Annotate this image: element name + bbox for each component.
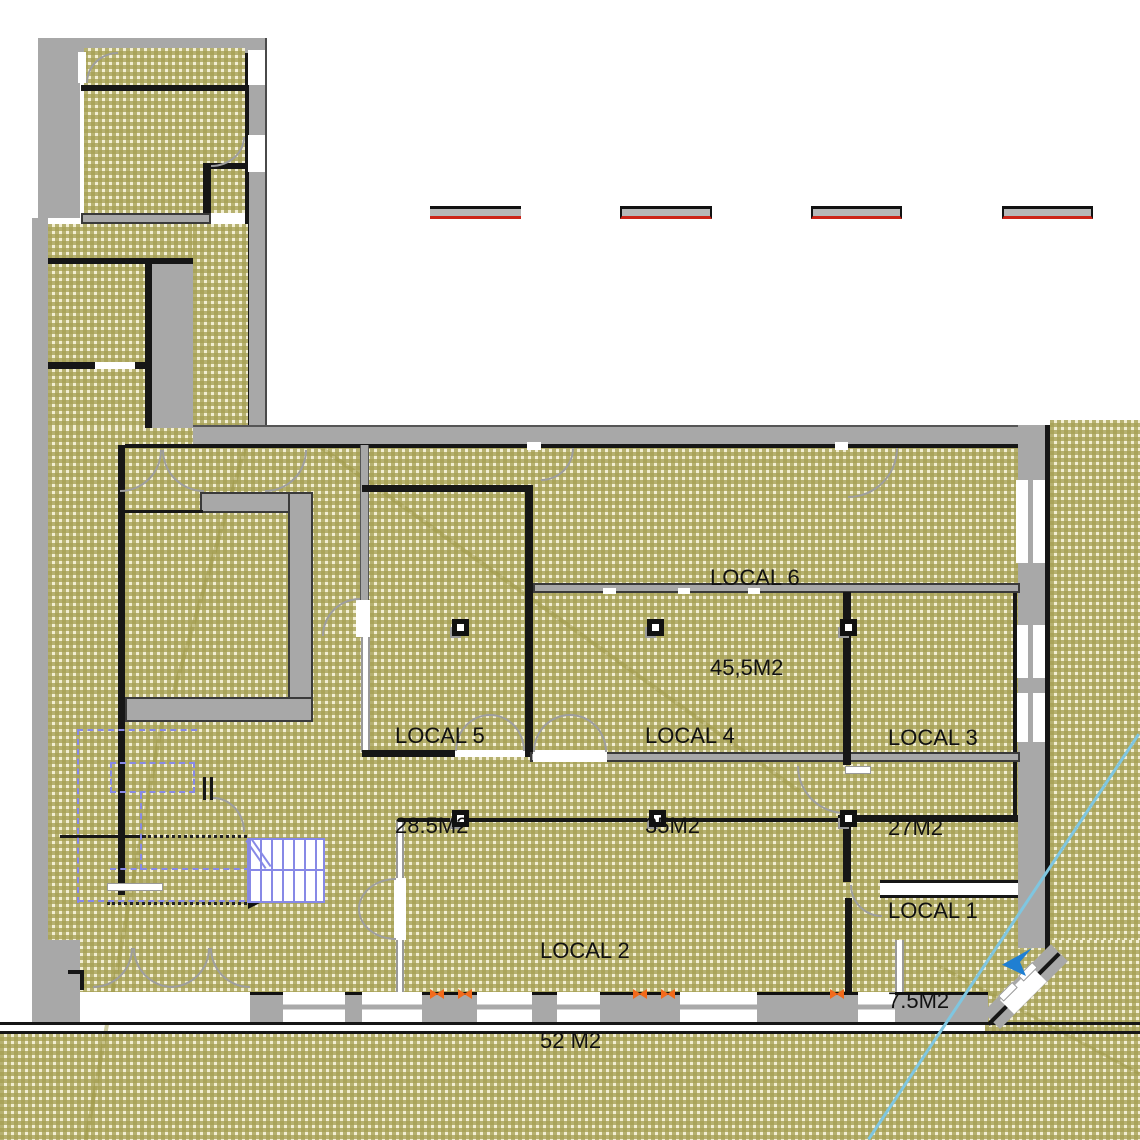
- room-area: 7.5M2: [888, 986, 978, 1016]
- column-symbol: [647, 619, 664, 636]
- room-area: 28.5M2: [395, 811, 485, 841]
- vestibule-partition: [118, 445, 125, 895]
- north-door-gap-1: [527, 442, 541, 450]
- local3-right-edge: [1013, 592, 1017, 822]
- column-symbol: [840, 619, 857, 636]
- door-leaf: [107, 883, 163, 891]
- room-name: LOCAL 4: [645, 721, 735, 751]
- floor-plan: LOCAL 6 45,5M2 LOCAL 5 28.5M2 LOCAL 4 35…: [0, 0, 1140, 1140]
- room-label-local2: LOCAL 2 52 M2: [540, 876, 630, 1116]
- room-area: 52 M2: [540, 1026, 630, 1056]
- room-label-local4: LOCAL 4 35M2: [645, 661, 735, 901]
- column-symbol: [840, 810, 857, 827]
- north-door-gap-2: [835, 442, 848, 450]
- dashed-wall-segment: [811, 206, 902, 219]
- local34-divider: [843, 592, 851, 765]
- dashed-outline: [77, 729, 197, 731]
- dashed-wall-segment: [430, 206, 521, 219]
- left-wing-room3-right-wall: [145, 264, 152, 428]
- dotted-line: [143, 835, 247, 838]
- dotted-line-solid: [60, 835, 143, 838]
- dashed-outline: [77, 729, 79, 903]
- local1-lower-wall: [845, 898, 852, 995]
- left-wing-window-upper: [248, 50, 265, 85]
- south-entry-opening: [80, 992, 250, 1022]
- left-wing-left-wall-thin: [32, 218, 48, 1024]
- room-area: 35M2: [645, 811, 735, 841]
- left-wing-right-wall: [248, 38, 265, 428]
- room-name: LOCAL 6: [710, 563, 800, 593]
- left-wing-lwall-vert: [203, 163, 211, 213]
- dashed-wall-segment: [1002, 206, 1093, 219]
- dashed-wall-segment: [620, 206, 712, 219]
- pier-step: [80, 970, 84, 990]
- dotted-line: [107, 902, 253, 905]
- left-wing-right-wall-outer-edge: [265, 38, 267, 428]
- local5-top-wall: [362, 485, 532, 492]
- south-window: [362, 992, 422, 1022]
- south-window: [283, 992, 345, 1022]
- dashed-outline: [110, 762, 195, 793]
- dashed-outline: [110, 868, 250, 870]
- room-name: LOCAL 5: [395, 721, 485, 751]
- wall-notch: [603, 588, 616, 594]
- door-leaf: [845, 766, 871, 774]
- dashed-outline: [78, 900, 255, 902]
- glazed-partition: [361, 637, 370, 752]
- room-label-local1: LOCAL 1 7.5M2: [888, 836, 978, 1076]
- wall-notch: [678, 588, 690, 594]
- dashed-outline: [140, 793, 142, 870]
- vestibule-c-right: [288, 492, 313, 722]
- left-wing-left-wall-thick: [38, 38, 80, 218]
- stairs-divider: [249, 869, 323, 871]
- room-name: LOCAL 2: [540, 936, 630, 966]
- left-wing-gray-band: [81, 213, 211, 224]
- south-window: [680, 992, 757, 1022]
- east-window-2: [1016, 625, 1045, 678]
- south-window: [477, 992, 532, 1022]
- left-wing-window-lower: [248, 135, 265, 172]
- left-wing-room-3: [48, 264, 145, 364]
- room-name: LOCAL 3: [888, 723, 978, 753]
- left-wing-duct: [152, 264, 193, 428]
- vestibule-c-bottom: [125, 697, 313, 722]
- left-wing-door-gap-3: [95, 362, 135, 369]
- room-label-local5: LOCAL 5 28.5M2: [395, 661, 485, 901]
- room-name: LOCAL 1: [888, 896, 978, 926]
- local1-left-wall: [843, 822, 851, 882]
- left-wing-vertical-corridor: [193, 224, 248, 428]
- east-window-1: [1016, 480, 1045, 563]
- local5-right-wall: [525, 485, 533, 757]
- wall-stub: [203, 777, 206, 800]
- east-window-3: [1016, 693, 1045, 742]
- column-symbol: [452, 619, 469, 636]
- north-wall: [193, 425, 1048, 444]
- left-wing-door-gap-top: [78, 52, 86, 83]
- corridor-wall: [360, 445, 369, 600]
- southwest-pier: [48, 940, 80, 1024]
- vestibule-room-top-edge: [125, 510, 203, 513]
